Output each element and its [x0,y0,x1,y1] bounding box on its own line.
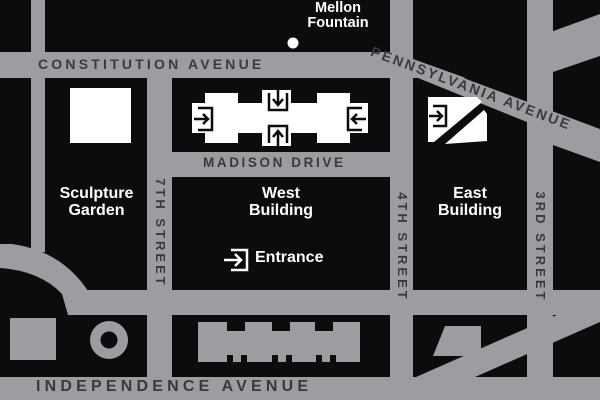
west-building-label: West Building [231,186,331,220]
ninth-street-road [31,0,45,252]
fourth-street-label: 4TH STREET [395,182,409,312]
third-street-label: 3RD STREET [533,182,547,312]
entrance-legend-label: Entrance [255,250,323,267]
independence-avenue-label: INDEPENDENCE AVENUE [36,379,312,396]
block-west-strip [0,78,31,244]
round-fountain-center [101,332,118,349]
national-gallery-area-map: CONSTITUTION AVENUE PENNSYLVANIA AVENUE … [0,0,600,400]
jefferson-drive-road [0,290,600,315]
constitution-avenue-label: CONSTITUTION AVENUE [38,57,264,72]
southwest-building [10,318,56,360]
sculpture-garden-label: Sculpture Garden [46,186,147,220]
block-northwest-corner [0,0,31,52]
mellon-fountain-label: Mellon Fountain [292,1,384,31]
sculpture-garden-pavilion [70,88,131,143]
block-east-of-third [553,145,600,290]
west-building-east-pavilion [317,93,350,143]
madison-drive-label: MADISON DRIVE [203,156,346,170]
mellon-fountain-dot [288,38,299,49]
east-building-label: East Building [420,186,520,220]
seventh-street-label: 7TH STREET [153,168,167,298]
west-building-west-pavilion [205,93,238,143]
